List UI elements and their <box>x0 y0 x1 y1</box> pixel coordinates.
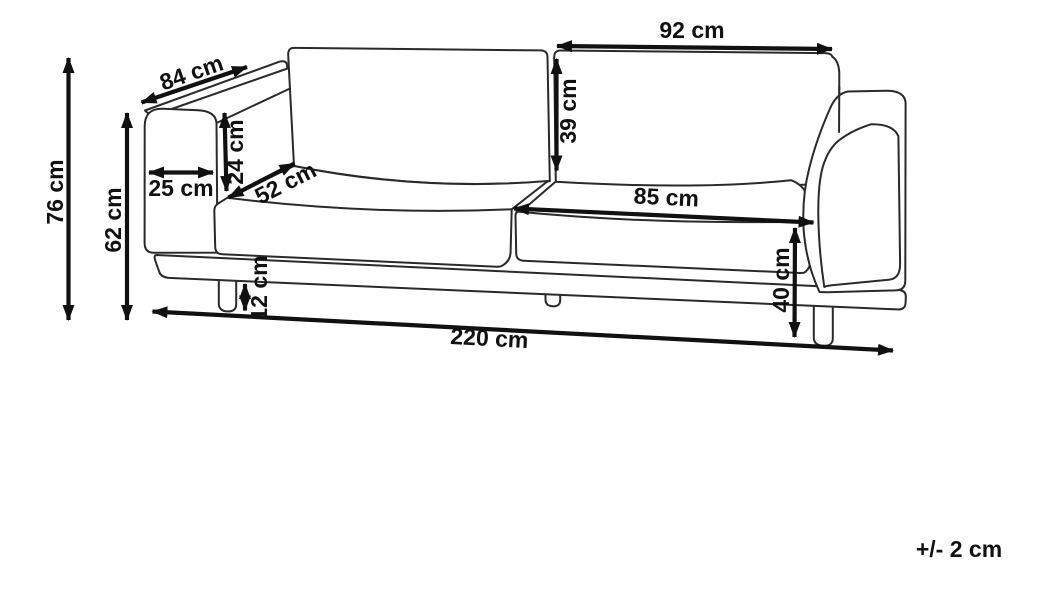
sofa-dimension-diagram: 76 cm 62 cm 84 cm 24 cm 25 cm 52 cm 92 c… <box>0 0 1048 590</box>
dim-arrow-seat-height <box>795 228 796 337</box>
diagram-canvas: 76 cm 62 cm 84 cm 24 cm 25 cm 52 cm 92 c… <box>0 0 1048 590</box>
dim-label-armrest-width: 25 cm <box>148 175 213 201</box>
dimension-armrest-width: 25 cm <box>148 173 213 202</box>
dimension-armrest-height: 62 cm <box>100 113 127 320</box>
leg-right <box>814 306 833 346</box>
back-cushion-right <box>554 50 841 186</box>
leg-left <box>219 279 236 311</box>
armrest-right-inner <box>818 124 900 287</box>
armrest-left-inner-edge <box>217 89 291 124</box>
dim-arrow-back-cushion-width <box>557 46 832 49</box>
dim-label-back-cushion-width: 92 cm <box>659 17 724 43</box>
dimension-armrest-top-above-seat: 24 cm <box>222 113 248 191</box>
dim-label-armrest-height: 62 cm <box>100 187 126 252</box>
dimension-overall-width: 220 cm <box>153 312 894 354</box>
dim-label-back-cushion-height: 39 cm <box>555 78 581 143</box>
dim-label-armrest-top-above-seat: 24 cm <box>222 119 248 184</box>
dimension-leg-height: 12 cm <box>245 255 272 320</box>
dim-label-seat-height: 40 cm <box>768 247 794 312</box>
back-cushion-left <box>288 48 550 184</box>
dim-label-overall-height: 76 cm <box>42 159 68 224</box>
dimension-back-cushion-width: 92 cm <box>557 17 832 49</box>
tolerance-note: +/- 2 cm <box>916 536 1002 562</box>
dim-label-seat-cushion-width: 85 cm <box>633 182 699 211</box>
dimension-overall-height: 76 cm <box>42 58 69 320</box>
dim-label-leg-height: 12 cm <box>246 255 272 320</box>
dim-label-overall-width: 220 cm <box>450 323 529 353</box>
